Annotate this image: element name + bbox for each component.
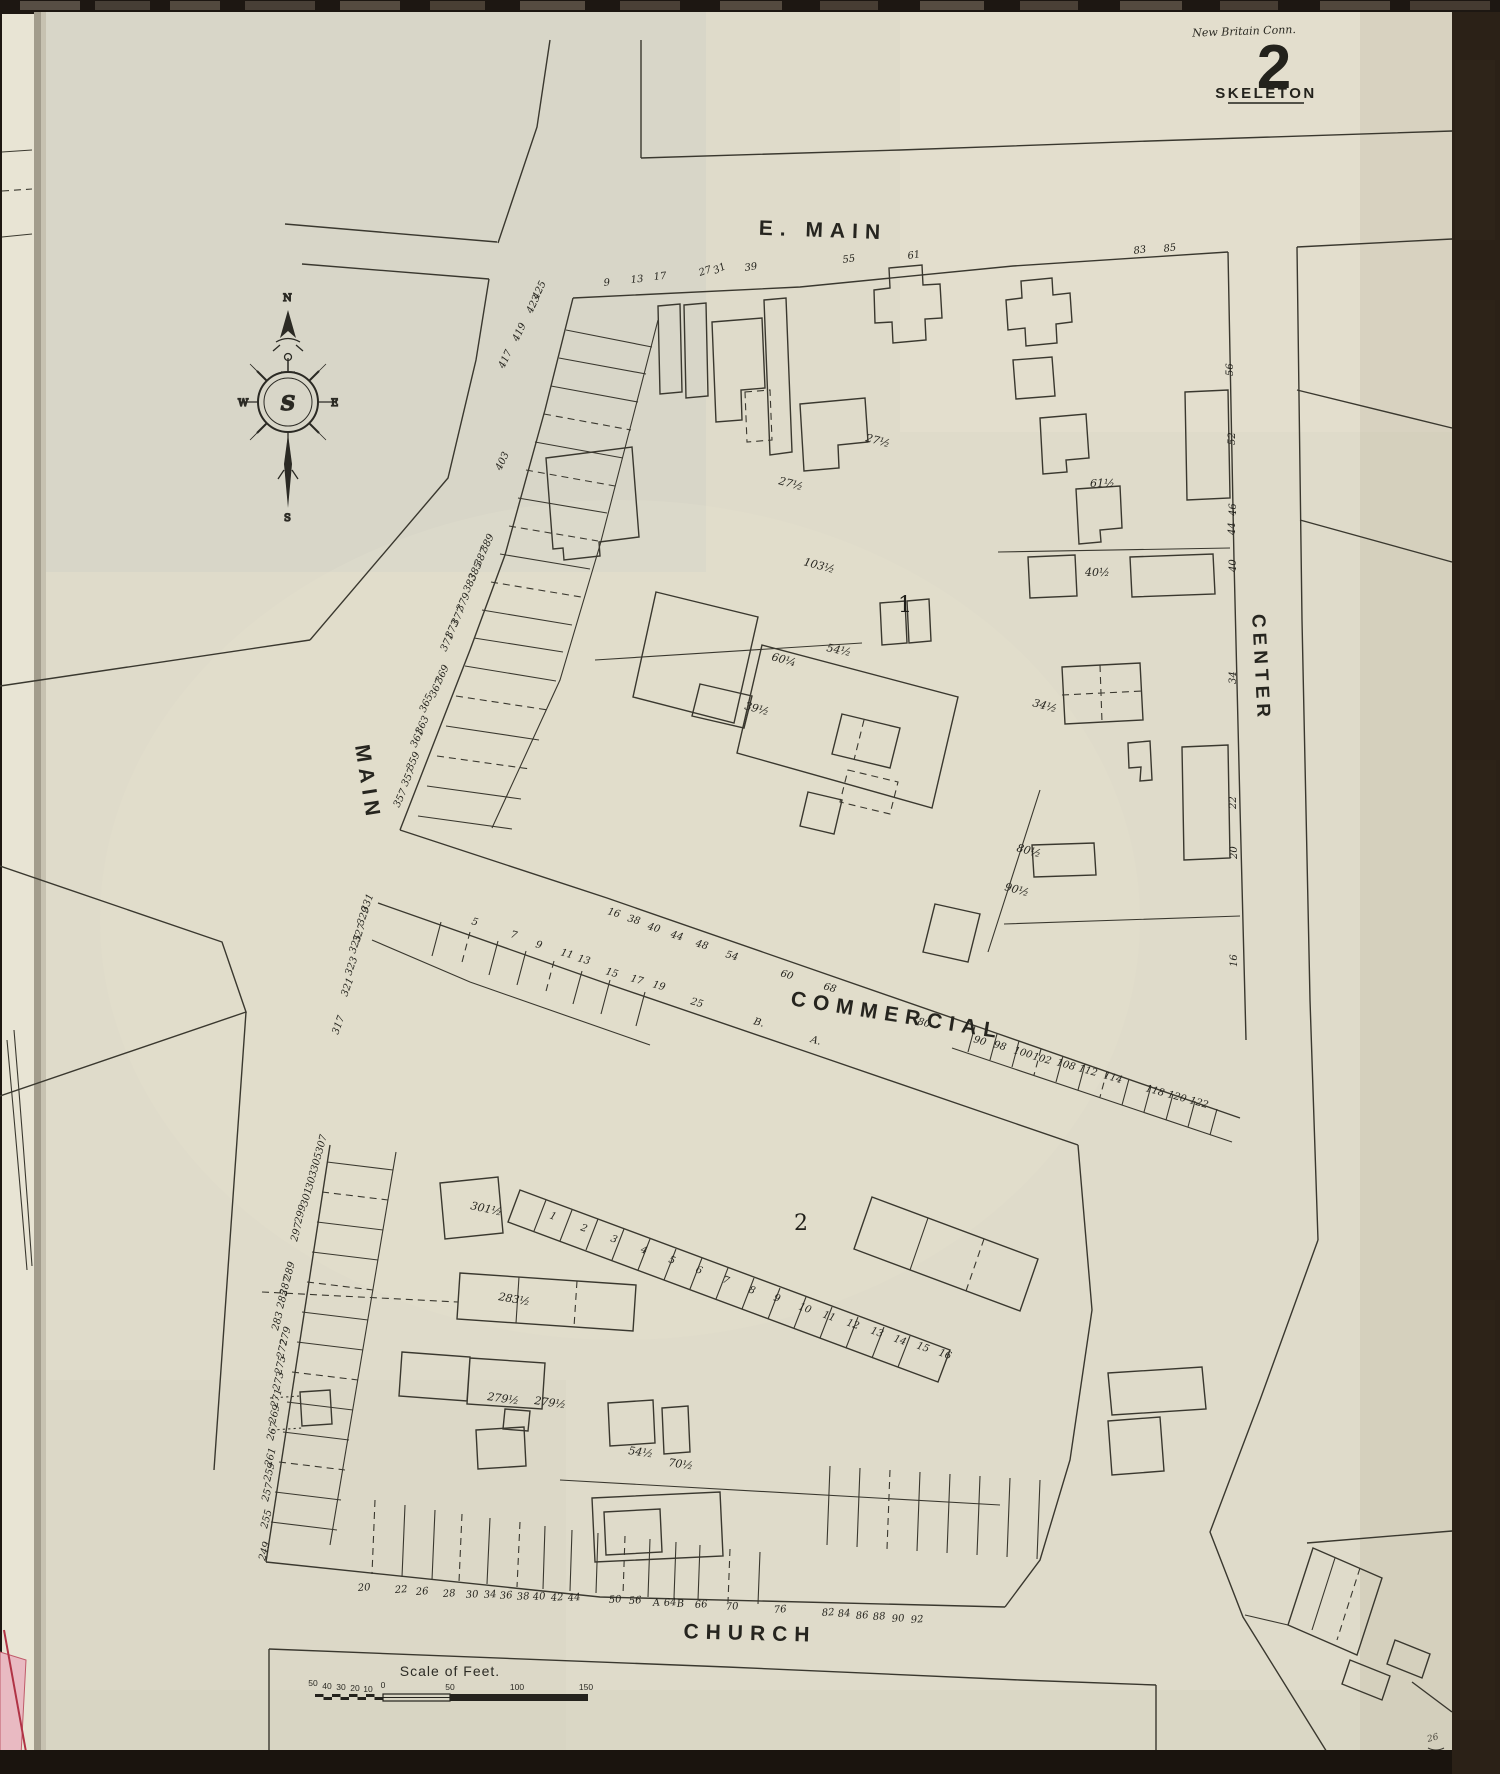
sanborn-map-sheet: N S W E S E. MAIN MAIN CENTER COMMERCIAL…	[0, 0, 1500, 1774]
address-label: 44	[1227, 522, 1238, 536]
scale-tick-label: 50	[445, 1682, 455, 1692]
address-label: 70	[725, 1601, 739, 1613]
address-label: 20	[356, 1582, 371, 1594]
address-label: 50	[608, 1594, 622, 1606]
address-label: 17	[653, 271, 667, 283]
address-label: 56	[1225, 363, 1236, 376]
address-label: 46	[1228, 503, 1239, 517]
scale-tick-label: 30	[336, 1682, 346, 1692]
address-label: 86	[855, 1610, 869, 1622]
address-label: 40	[1228, 559, 1239, 573]
scale-tick-label: 0	[381, 1680, 386, 1690]
compass-west-label: W	[238, 398, 249, 409]
right-binding-edge	[1452, 12, 1500, 1774]
compass-monogram: S	[281, 391, 295, 415]
address-label: 34	[483, 1589, 496, 1601]
address-label: B	[675, 1599, 684, 1611]
address-label: 76	[773, 1604, 787, 1616]
scale-tick-label: 150	[579, 1682, 593, 1692]
compass-east-label: E	[331, 398, 338, 409]
scale-tick-label: 40	[322, 1681, 332, 1691]
address-label: 16	[1229, 954, 1240, 967]
address-label: 26	[414, 1586, 429, 1598]
address-label: 84	[837, 1608, 850, 1620]
address-label: 61½	[1090, 477, 1115, 490]
address-label: 34	[1228, 671, 1239, 684]
sanborn-map-canvas: N S W E S E. MAIN MAIN CENTER COMMERCIAL…	[0, 0, 1500, 1774]
address-label: 85	[1163, 242, 1177, 255]
address-label: 13	[630, 274, 644, 286]
address-label: 28	[441, 1588, 455, 1600]
scale-tick-label: 50	[308, 1678, 318, 1688]
scale-tick-label: 20	[350, 1683, 360, 1693]
address-label: 40	[531, 1591, 546, 1603]
address-label: 90	[891, 1613, 905, 1625]
address-label: 40½	[1084, 566, 1110, 579]
scale-bar-title: Scale of Feet.	[400, 1663, 500, 1679]
street-label-e-main: E. MAIN	[758, 217, 887, 244]
address-label: 42	[549, 1592, 563, 1604]
address-label: 52	[1227, 432, 1238, 445]
address-label: 20	[1229, 846, 1240, 860]
address-label: 82	[821, 1607, 834, 1619]
header-map-type: SKELETON	[1215, 85, 1316, 102]
block-number-2: 2	[794, 1211, 808, 1236]
compass-north-label: N	[283, 293, 292, 304]
address-label: 88	[872, 1611, 885, 1623]
address-label: 44	[566, 1592, 580, 1604]
address-label: 66	[694, 1599, 708, 1611]
address-label: 38	[516, 1591, 529, 1603]
address-label: 22	[1228, 796, 1239, 810]
scale-tick-label: 100	[510, 1682, 524, 1692]
address-label: 39	[744, 261, 759, 274]
address-label: 92	[910, 1614, 923, 1626]
address-label: 22	[393, 1584, 407, 1596]
block-number-1: 1	[898, 593, 912, 618]
address-label: 64	[663, 1597, 676, 1609]
address-label: 83	[1133, 244, 1147, 257]
address-label: 55	[842, 253, 856, 266]
scale-tick-label: 10	[363, 1684, 373, 1694]
address-label: 36	[499, 1590, 513, 1602]
address-label: 61	[907, 249, 921, 262]
address-label: 30	[465, 1589, 479, 1601]
street-label-church: CHURCH	[683, 1620, 817, 1646]
address-label: 56	[628, 1595, 642, 1607]
previous-page-edge	[0, 12, 46, 1774]
compass-south-label: S	[284, 513, 291, 524]
bottom-binding-shadow	[0, 1750, 1500, 1774]
address-label: A	[651, 1598, 660, 1610]
